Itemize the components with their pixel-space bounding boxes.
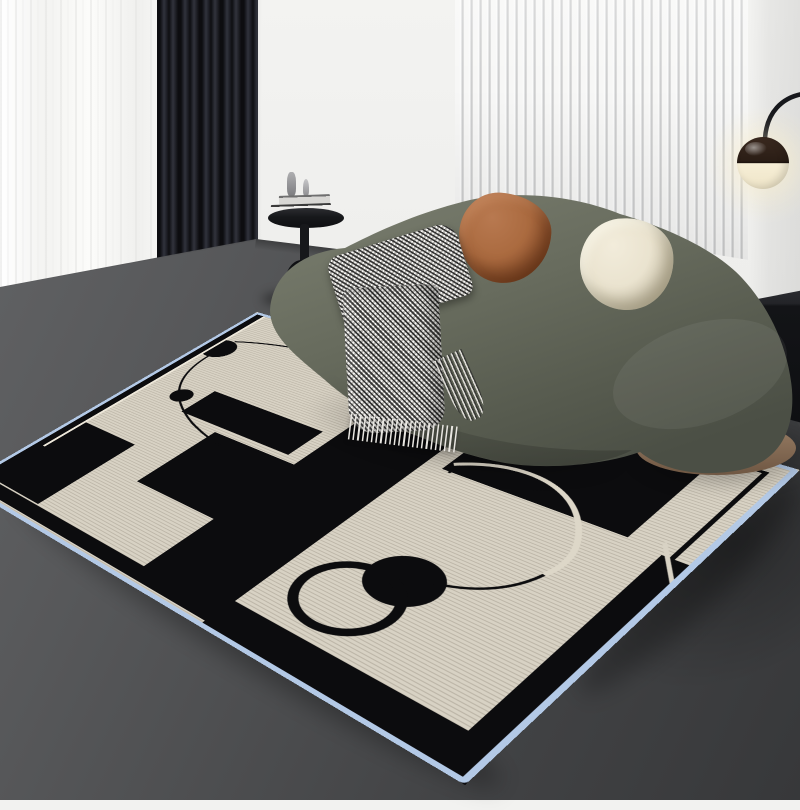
throw-blanket-drape: [342, 284, 446, 435]
living-room-photo: { "scene": { "setting": "modern minimali…: [0, 0, 800, 800]
